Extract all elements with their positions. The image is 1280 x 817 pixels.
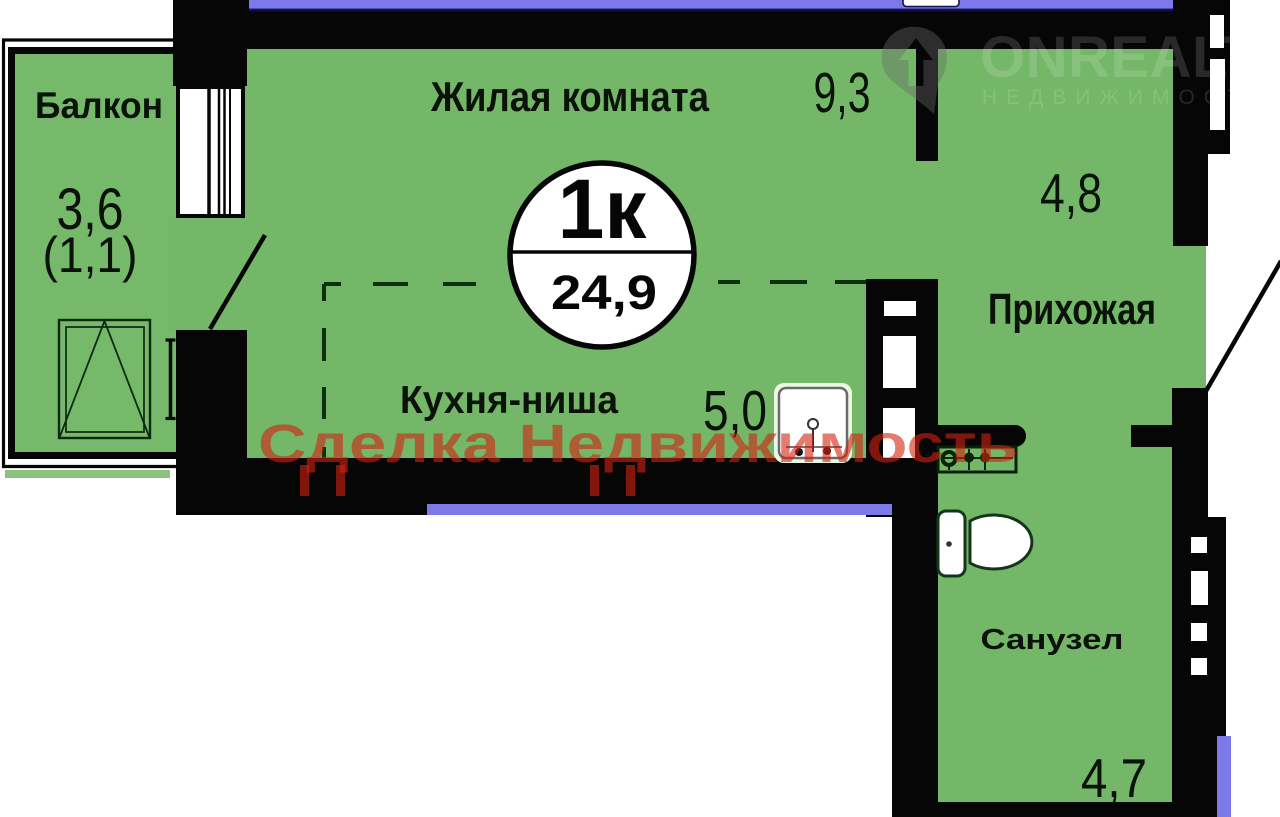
svg-text:НЕДВИЖИМОСТЬ: НЕДВИЖИМОСТЬ	[982, 86, 1272, 109]
svg-text:Сделка Недвижимость: Сделка Недвижимость	[258, 414, 1018, 474]
svg-text:4,7: 4,7	[1081, 747, 1147, 809]
svg-text:Санузел: Санузел	[981, 624, 1124, 656]
svg-text:(1,1): (1,1)	[43, 227, 138, 283]
svg-text:24,9: 24,9	[551, 267, 657, 320]
svg-text:Жилая комната: Жилая комната	[430, 73, 709, 120]
svg-text:9,3: 9,3	[814, 61, 871, 125]
svg-text:1к: 1к	[558, 162, 648, 256]
svg-text:Балкон: Балкон	[35, 85, 163, 126]
svg-text:4,8: 4,8	[1040, 162, 1102, 224]
svg-text:ONREALT: ONREALT	[980, 25, 1260, 90]
svg-text:Прихожая: Прихожая	[988, 285, 1156, 334]
